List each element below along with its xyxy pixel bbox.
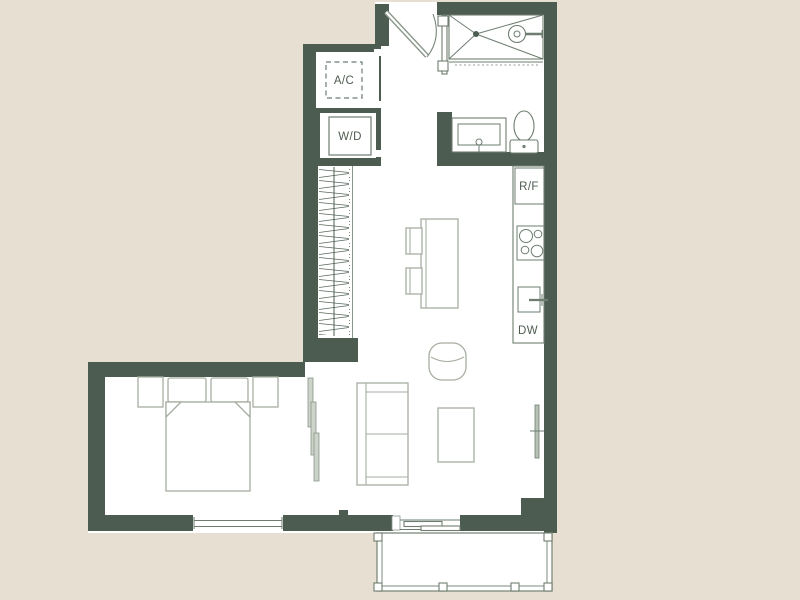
railing-post <box>511 583 519 591</box>
door-jamb-tick <box>374 49 381 56</box>
wall-top <box>437 2 557 15</box>
wall-bath-stub <box>437 112 452 152</box>
wall-bottom-right <box>460 515 524 531</box>
wd-label: W/D <box>338 131 362 143</box>
kitchen: R/F DW <box>513 166 548 343</box>
balcony-floor <box>377 533 552 591</box>
floor-plan-canvas: A/C W/D <box>0 0 800 600</box>
door-jamb-tick <box>374 150 381 157</box>
railing-post <box>439 583 447 591</box>
window-opening <box>193 515 283 531</box>
wall-bath-bottom <box>437 152 544 166</box>
glass-panel-clamp <box>438 16 448 26</box>
toilet-flush-button <box>522 145 525 148</box>
railing-post <box>544 533 552 541</box>
toilet-bowl-icon <box>514 111 534 141</box>
door-jamb <box>392 516 400 530</box>
wall-bottom-mid <box>283 515 393 531</box>
wall-bedroom-top <box>88 362 305 377</box>
wall-right <box>544 2 557 533</box>
railing-post <box>374 533 382 541</box>
bed-mattress-icon <box>166 402 250 491</box>
coffee-table-icon <box>438 408 474 462</box>
sliding-panel-3 <box>314 433 319 481</box>
wall-entry-left <box>375 4 389 46</box>
dw-label: DW <box>518 325 538 337</box>
door-stop <box>339 510 348 516</box>
shower-head-icon <box>509 26 526 43</box>
nightstand-right <box>253 377 278 407</box>
glass-panel-clamp <box>438 61 448 71</box>
railing-post <box>374 583 382 591</box>
shower-drain-icon <box>473 31 479 37</box>
sliding-glass-panel-2 <box>421 526 460 531</box>
pillow-right <box>211 378 248 402</box>
utility-closets: A/C W/D <box>316 49 381 158</box>
pillow-left <box>168 378 206 402</box>
wall-bedroom-left <box>88 362 105 531</box>
door-jamb-tick <box>374 101 381 108</box>
ac-label: A/C <box>334 75 354 87</box>
wall-closet-bottom <box>303 338 358 362</box>
bar-stool-2 <box>406 268 422 294</box>
shower-pan <box>449 15 543 59</box>
floor-plan: A/C W/D <box>0 0 800 600</box>
bedroom-window <box>193 515 283 531</box>
bar-stool-1 <box>406 228 422 254</box>
nightstand-left <box>138 377 163 407</box>
wall-bottom-left <box>88 515 193 531</box>
closet <box>319 166 353 338</box>
railing-post <box>544 583 552 591</box>
wall-corner-block <box>521 498 557 531</box>
wall-closet-left <box>303 166 318 362</box>
rf-label: R/F <box>519 181 539 193</box>
